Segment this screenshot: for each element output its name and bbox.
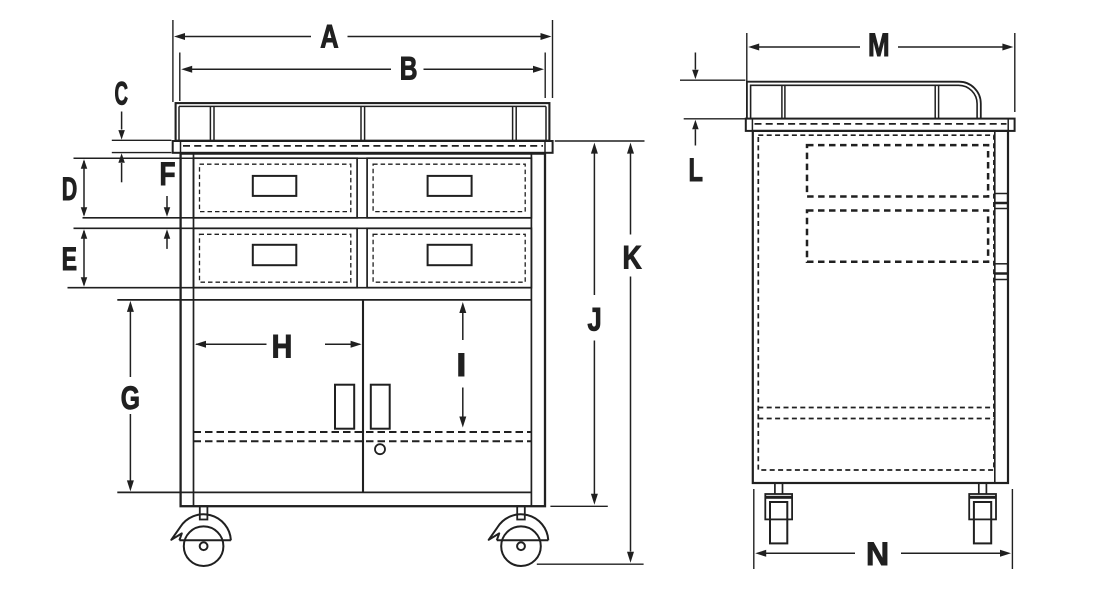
svg-text:E: E: [62, 241, 77, 277]
svg-text:K: K: [622, 239, 641, 275]
svg-text:L: L: [689, 152, 703, 188]
svg-text:F: F: [160, 156, 176, 192]
svg-text:J: J: [588, 301, 602, 337]
svg-text:D: D: [62, 171, 78, 207]
svg-text:H: H: [272, 328, 293, 364]
svg-text:M: M: [868, 27, 890, 63]
svg-text:C: C: [115, 75, 129, 111]
svg-text:N: N: [866, 536, 889, 572]
svg-text:I: I: [456, 347, 466, 383]
svg-text:A: A: [320, 19, 338, 55]
svg-text:B: B: [400, 50, 418, 86]
svg-text:G: G: [121, 380, 140, 416]
